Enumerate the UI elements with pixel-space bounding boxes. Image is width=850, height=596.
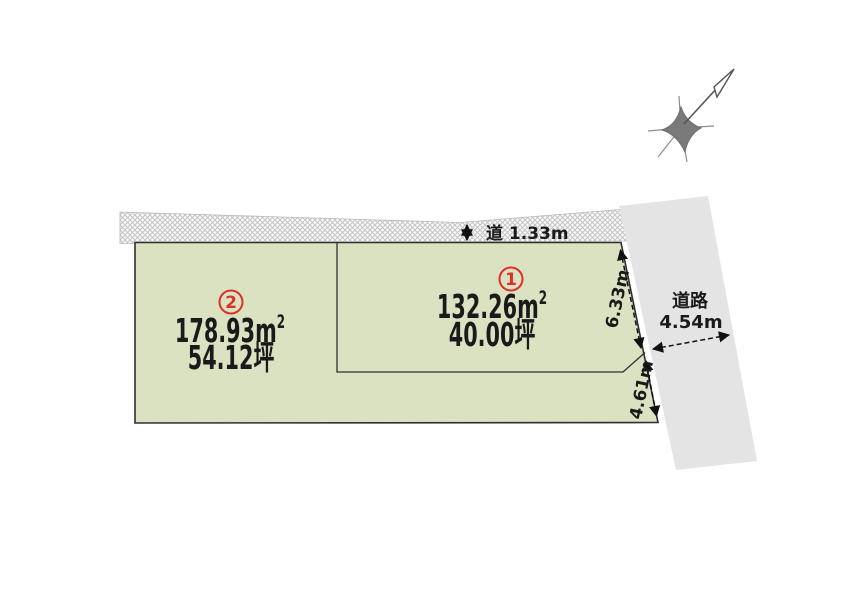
compass-pennant [714, 69, 734, 97]
side-road-name-label: 道路 [672, 290, 709, 312]
site-plan-svg: 道 1.33m 6.33m 4.61m 道路 4.54m 1 132.26m2 … [0, 0, 850, 596]
top-road-width-label: 道 1.33m [486, 223, 569, 244]
land-plot-diagram: 道 1.33m 6.33m 4.61m 道路 4.54m 1 132.26m2 … [0, 0, 850, 596]
plot-1-area-unit-sup: 2 [539, 286, 547, 309]
north-arrow-icon [648, 69, 734, 162]
side-road-width-label: 4.54m [659, 312, 722, 333]
plot-2-tsubo: 54.12坪 [188, 338, 275, 377]
plot-2-area-unit-sup: 2 [277, 310, 285, 333]
plot-1-tsubo: 40.00坪 [449, 315, 536, 354]
